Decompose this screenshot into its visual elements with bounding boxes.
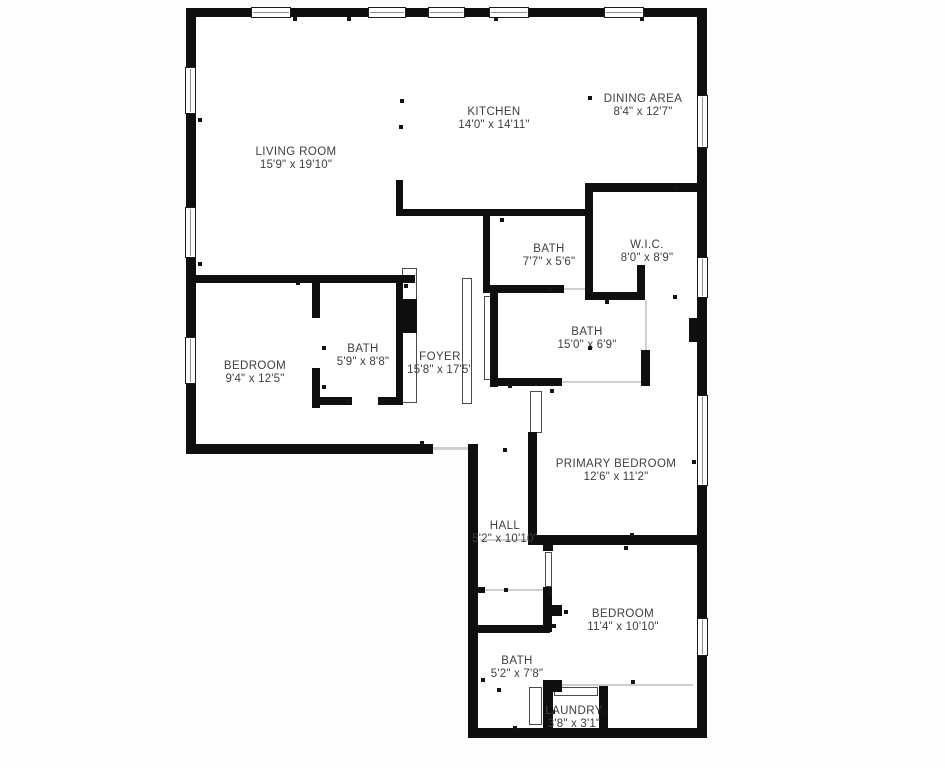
wall <box>396 209 593 216</box>
door-frame-tick <box>550 389 554 393</box>
door-frame-tick <box>322 385 326 389</box>
wall <box>528 535 707 545</box>
window <box>604 7 644 18</box>
door-frame-tick <box>381 399 385 403</box>
room-label-foyer: FOYER 15'8" x 17'5" <box>407 351 473 377</box>
room-dims: 7'7" x 5'6" <box>523 256 575 269</box>
door-frame-tick <box>513 726 517 730</box>
room-name: PRIMARY BEDROOM <box>556 458 677 471</box>
door-frame-tick <box>631 680 635 684</box>
room-dims: 5'2" x 10'10" <box>472 533 538 546</box>
wall <box>637 265 645 295</box>
window <box>697 618 708 656</box>
room-dims: 15'9" x 19'10" <box>255 159 336 172</box>
door-frame-tick <box>624 546 628 550</box>
room-dims: 14'0" x 14'11" <box>458 119 529 132</box>
room-dims: 8'4" x 12'7" <box>604 106 683 119</box>
door-frame-tick <box>552 624 556 628</box>
door-frame-tick <box>640 17 644 21</box>
room-dims: 15'0" x 6'9" <box>557 339 616 352</box>
wall <box>641 350 650 386</box>
room-label-hall: HALL 5'2" x 10'10" <box>472 520 538 546</box>
door-frame-tick <box>346 399 350 403</box>
window <box>251 7 291 18</box>
wall <box>543 605 562 616</box>
door-frame-tick <box>605 300 609 304</box>
wall <box>483 216 490 293</box>
window <box>697 257 708 298</box>
door-frame-tick <box>503 448 507 452</box>
wall <box>585 183 707 192</box>
room-label-bath-bottom: BATH 5'2" x 7'8" <box>491 655 543 681</box>
door-frame-tick <box>404 284 408 288</box>
room-label-bedroom-bottom: BEDROOM 11'4" x 10'10" <box>587 608 658 634</box>
door-frame-tick <box>588 96 592 100</box>
room-name: W.I.C. <box>621 239 673 252</box>
door-frame-tick <box>296 281 300 285</box>
room-dims: 12'6" x 11'2" <box>556 471 677 484</box>
floorplan-canvas: LIVING ROOM 15'9" x 19'10" KITCHEN 14'0"… <box>0 0 945 768</box>
door-leaf <box>530 391 542 433</box>
room-name: DINING AREA <box>604 93 683 106</box>
door-frame-tick <box>675 186 679 190</box>
wall <box>585 183 593 300</box>
room-name: KITCHEN <box>458 106 529 119</box>
window <box>185 337 196 384</box>
window <box>428 7 465 18</box>
room-name: BEDROOM <box>224 360 286 373</box>
door-frame-tick <box>504 588 508 592</box>
door-frame-tick <box>508 384 512 388</box>
room-label-bath-59: BATH 5'9" x 8'8" <box>337 343 389 369</box>
room-dims: 11'4" x 10'10" <box>587 621 658 634</box>
room-name: LIVING ROOM <box>255 146 336 159</box>
door-leaf <box>545 552 552 587</box>
window <box>368 7 406 18</box>
wall <box>477 625 550 633</box>
door-frame-tick <box>497 688 501 692</box>
door-frame-tick <box>692 460 696 464</box>
wall <box>186 275 415 283</box>
wall <box>543 680 562 692</box>
door-frame-tick <box>322 346 326 350</box>
wall <box>543 537 553 551</box>
room-dims: 9'4" x 12'5" <box>224 373 286 386</box>
wall <box>186 444 433 454</box>
opening-line <box>645 300 647 350</box>
window <box>185 207 196 258</box>
room-name: BATH <box>523 243 575 256</box>
door-frame-tick <box>420 441 424 445</box>
room-name: BATH <box>491 655 543 668</box>
room-name: BATH <box>337 343 389 356</box>
door-leaf <box>529 687 542 725</box>
wall <box>689 318 697 342</box>
door-frame-tick <box>481 678 485 682</box>
room-name: HALL <box>472 520 538 533</box>
room-dims: 3'8" x 3'1" <box>545 718 603 731</box>
door-frame-tick <box>198 262 202 266</box>
room-name: BATH <box>557 326 616 339</box>
opening-line <box>485 589 543 591</box>
door-frame-tick <box>564 610 568 614</box>
wall <box>585 292 645 300</box>
window <box>697 395 708 486</box>
room-label-bedroom-left: BEDROOM 9'4" x 12'5" <box>224 360 286 386</box>
room-label-bath-15: BATH 15'0" x 6'9" <box>557 326 616 352</box>
door-frame-tick <box>198 118 202 122</box>
room-name: LAUNDRY <box>545 705 603 718</box>
window <box>697 95 708 148</box>
room-label-primary-bedroom: PRIMARY BEDROOM 12'6" x 11'2" <box>556 458 677 484</box>
room-label-laundry: LAUNDRY 3'8" x 3'1" <box>545 705 603 731</box>
opening-line <box>562 381 641 383</box>
room-name: FOYER <box>407 351 473 364</box>
wall <box>312 280 320 318</box>
room-dims: 15'8" x 17'5" <box>407 364 473 377</box>
opening-line <box>564 288 585 290</box>
door-leaf <box>462 278 472 404</box>
room-label-dining-area: DINING AREA 8'4" x 12'7" <box>604 93 683 119</box>
window <box>185 67 196 114</box>
room-label-wic: W.I.C. 8'0" x 8'9" <box>621 239 673 265</box>
opening-line <box>433 447 468 450</box>
door-frame-tick <box>673 295 677 299</box>
room-label-kitchen: KITCHEN 14'0" x 14'11" <box>458 106 529 132</box>
room-name: BEDROOM <box>587 608 658 621</box>
wall <box>397 299 417 333</box>
room-dims: 5'9" x 8'8" <box>337 356 389 369</box>
wall <box>490 293 498 387</box>
room-dims: 5'2" x 7'8" <box>491 668 543 681</box>
door-frame-tick <box>548 592 552 596</box>
door-frame-tick <box>347 17 351 21</box>
door-frame-tick <box>400 99 404 103</box>
door-frame-tick <box>494 17 498 21</box>
room-label-living-room: LIVING ROOM 15'9" x 19'10" <box>255 146 336 172</box>
door-frame-tick <box>500 218 504 222</box>
door-frame-tick <box>293 17 297 21</box>
door-frame-tick <box>399 125 403 129</box>
door-frame-tick <box>630 533 634 537</box>
room-dims: 8'0" x 8'9" <box>621 252 673 265</box>
wall <box>477 587 485 593</box>
door-frame-tick <box>548 287 552 291</box>
room-label-bath-center: BATH 7'7" x 5'6" <box>523 243 575 269</box>
opening-line <box>553 684 693 686</box>
